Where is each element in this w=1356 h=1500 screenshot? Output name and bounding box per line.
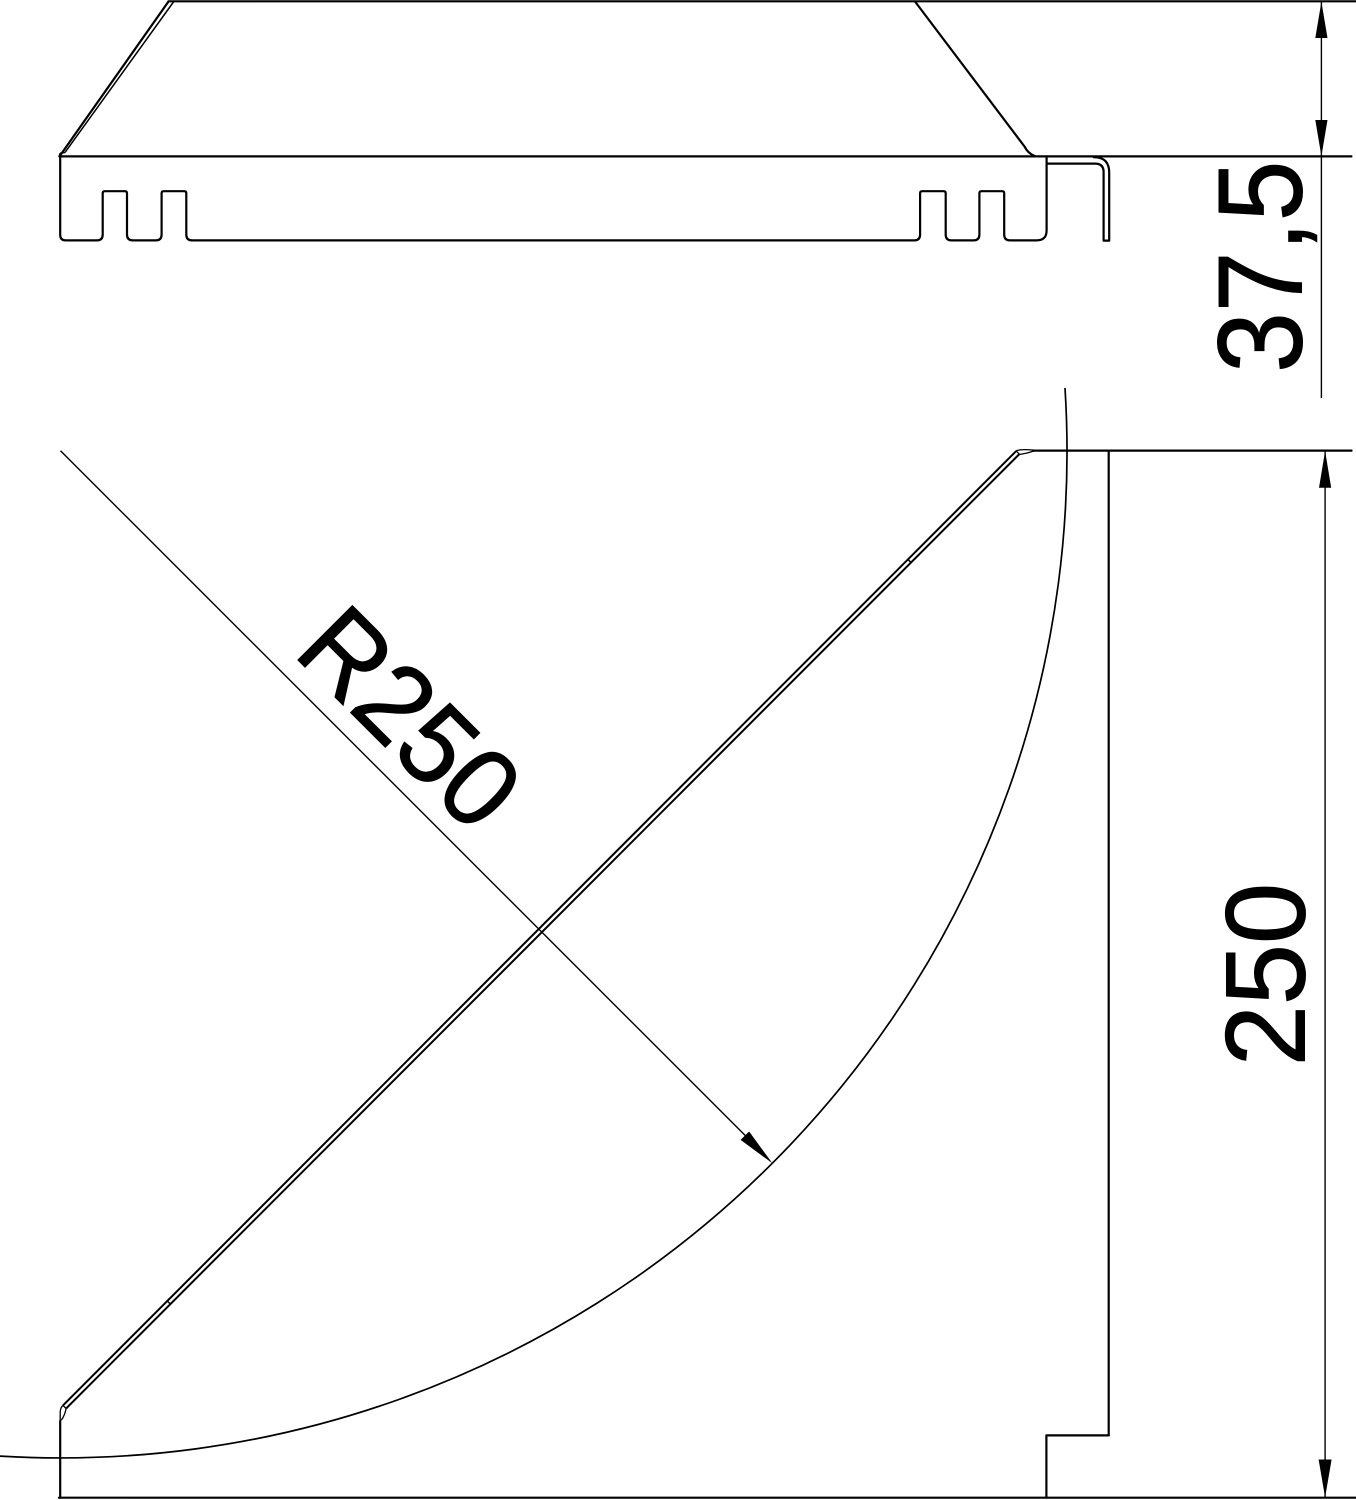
svg-text:250: 250 [1202, 883, 1328, 1067]
svg-text:37,5: 37,5 [1193, 161, 1327, 373]
svg-text:R250: R250 [275, 582, 546, 853]
